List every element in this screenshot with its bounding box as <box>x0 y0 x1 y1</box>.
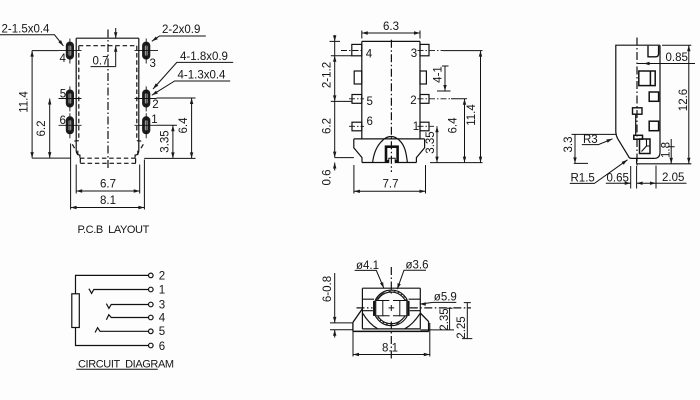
svg-text:2.25: 2.25 <box>456 316 468 338</box>
svg-text:4: 4 <box>159 312 166 324</box>
svg-text:1: 1 <box>151 114 157 126</box>
svg-text:11.4: 11.4 <box>466 104 478 126</box>
svg-text:11.4: 11.4 <box>19 91 31 113</box>
svg-text:2-1.5x0.4: 2-1.5x0.4 <box>2 24 51 36</box>
svg-text:ø5.9: ø5.9 <box>434 292 457 304</box>
svg-text:12.6: 12.6 <box>678 89 690 111</box>
svg-text:3: 3 <box>411 48 417 60</box>
svg-text:6.4: 6.4 <box>448 117 460 134</box>
svg-text:3.3: 3.3 <box>563 137 575 153</box>
svg-text:4-1.8x0.9: 4-1.8x0.9 <box>180 51 228 63</box>
svg-text:6.4: 6.4 <box>178 117 190 134</box>
svg-text:7.7: 7.7 <box>383 179 399 191</box>
svg-text:4-1.3x0.4: 4-1.3x0.4 <box>178 70 227 82</box>
svg-text:2.05: 2.05 <box>662 172 684 184</box>
svg-text:6: 6 <box>60 115 66 127</box>
svg-text:6.2: 6.2 <box>322 118 334 134</box>
svg-text:2-2x0.9: 2-2x0.9 <box>162 24 200 36</box>
svg-text:CIRCUIT DIAGRAM: CIRCUIT DIAGRAM <box>78 358 174 370</box>
svg-text:1: 1 <box>413 121 419 133</box>
svg-text:2.35: 2.35 <box>439 308 451 330</box>
svg-text:0.85: 0.85 <box>666 52 688 64</box>
svg-text:5: 5 <box>367 96 373 108</box>
svg-text:3: 3 <box>159 299 165 311</box>
svg-text:3.35: 3.35 <box>425 131 437 153</box>
svg-text:0.7: 0.7 <box>93 56 109 68</box>
svg-text:6.7: 6.7 <box>100 179 116 191</box>
svg-text:2: 2 <box>159 270 165 282</box>
svg-text:3: 3 <box>150 58 156 70</box>
svg-text:2: 2 <box>152 99 158 111</box>
svg-text:6.3: 6.3 <box>383 21 399 33</box>
svg-text:4: 4 <box>60 53 67 65</box>
svg-text:R1.5: R1.5 <box>571 173 595 185</box>
svg-text:5: 5 <box>60 89 66 101</box>
svg-text:6: 6 <box>367 116 373 128</box>
svg-text:1.8: 1.8 <box>660 142 672 158</box>
svg-text:8.1: 8.1 <box>382 343 398 355</box>
svg-text:6-0.8: 6-0.8 <box>322 276 334 302</box>
svg-text:2-1.2: 2-1.2 <box>322 62 334 88</box>
svg-text:3.35: 3.35 <box>160 130 172 152</box>
svg-text:8.1: 8.1 <box>100 195 116 207</box>
svg-text:6: 6 <box>159 341 165 353</box>
svg-text:4: 4 <box>366 49 373 61</box>
svg-text:5: 5 <box>159 326 165 338</box>
svg-text:P.C.B LAYOUT: P.C.B LAYOUT <box>78 224 150 236</box>
svg-text:0.6: 0.6 <box>322 170 334 186</box>
svg-text:1: 1 <box>159 284 165 296</box>
svg-text:2: 2 <box>410 95 416 107</box>
svg-text:6.2: 6.2 <box>36 121 48 137</box>
svg-text:4-1: 4-1 <box>433 66 445 83</box>
